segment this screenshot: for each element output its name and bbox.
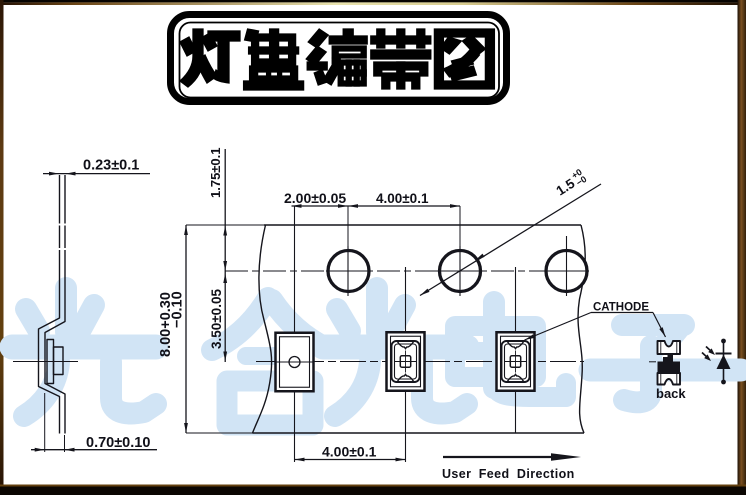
svg-text:4.00±0.1: 4.00±0.1 bbox=[322, 444, 377, 460]
svg-text:2.00±0.05: 2.00±0.05 bbox=[284, 190, 346, 206]
svg-text:User Feed Direction: User Feed Direction bbox=[442, 467, 575, 481]
svg-text:−0.10: −0.10 bbox=[170, 291, 186, 328]
svg-text:0.23±0.1: 0.23±0.1 bbox=[83, 158, 139, 174]
svg-text:CATHODE: CATHODE bbox=[593, 302, 649, 314]
svg-text:1.75±0.1: 1.75±0.1 bbox=[208, 147, 223, 198]
svg-text:4.00±0.1: 4.00±0.1 bbox=[376, 191, 429, 206]
svg-text:0.70±0.10: 0.70±0.10 bbox=[86, 435, 150, 451]
svg-text:back: back bbox=[656, 386, 686, 401]
svg-text:3.50±0.05: 3.50±0.05 bbox=[209, 289, 224, 349]
